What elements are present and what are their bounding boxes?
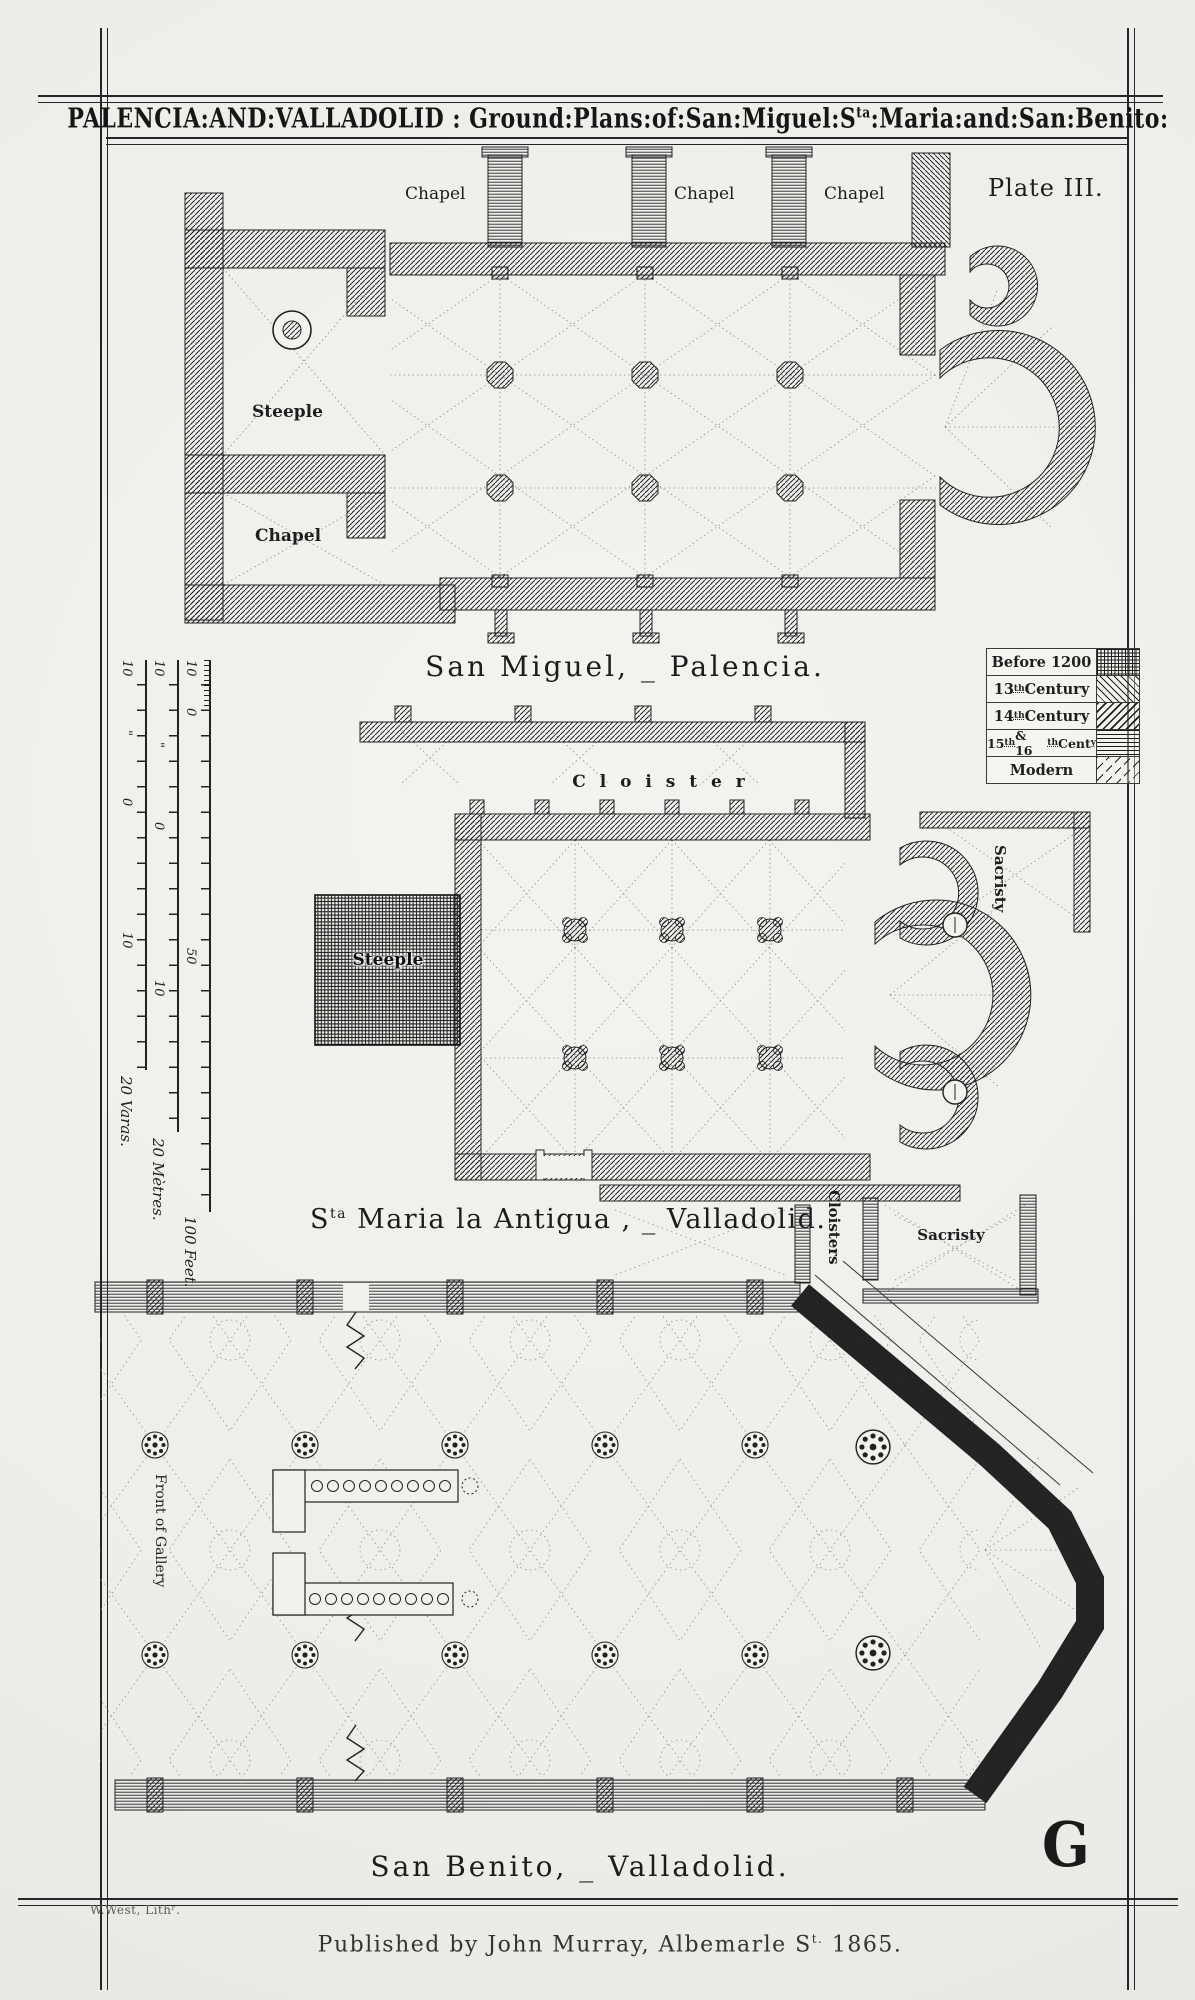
- scale-feet: 10 0 50 100 Feet.: [201, 660, 211, 1212]
- san-miguel-plan: [100, 145, 1110, 650]
- plate-title: PALENCIA:AND:VALLADOLID : Ground:Plans:o…: [108, 99, 1128, 139]
- scale-metres: 10 " 0 10 20 Mètres.: [169, 660, 179, 1132]
- front-of-gallery-label: Front of Gallery: [152, 1474, 168, 1587]
- publisher-imprint: Published by John Murray, Albemarle St. …: [290, 1932, 930, 1957]
- legend-row-13th: 13th Century: [987, 676, 1139, 703]
- title-part-b: Ground:Plans:of:San:Miguel:S: [469, 103, 856, 135]
- legend-swatch-before-1200: [1096, 649, 1139, 675]
- lithograph-plate-page: PALENCIA:AND:VALLADOLID : Ground:Plans:o…: [0, 0, 1195, 2000]
- south-buttresses: [488, 610, 804, 643]
- cloister-range: [360, 706, 865, 818]
- chapel-label-2: Chapel: [674, 184, 734, 204]
- cloisters-label: Cloisters: [825, 1190, 843, 1265]
- legend-swatch-13th: [1096, 676, 1139, 702]
- legend-row-before-1200: Before 1200: [987, 649, 1139, 676]
- chapel-label-west: Chapel: [255, 526, 321, 546]
- legend-label-before-1200: Before 1200: [992, 654, 1092, 671]
- steeple-label-sta-maria: Steeple: [338, 950, 438, 970]
- lithographer-credit: W.West, Lithʳ.: [90, 1903, 180, 1917]
- steeple-block: [315, 895, 460, 1045]
- vault-grid: [481, 840, 845, 1154]
- san-benito-plan: [95, 1185, 1110, 1865]
- caption-san-benito: San Benito, _ Valladolid.: [320, 1850, 840, 1883]
- north-wall: [390, 243, 945, 275]
- sacristy-label-sta-maria: Sacristy: [991, 845, 1009, 912]
- chapel-label-3: Chapel: [824, 184, 884, 204]
- star-vault-field: [100, 1315, 980, 1777]
- artist-monogram: G: [1042, 1809, 1090, 1882]
- steeple-label-san-miguel: Steeple: [252, 402, 323, 422]
- scale-feet-subdivisions: [204, 660, 209, 708]
- title-superscript: ta: [856, 104, 870, 121]
- stair-turret: [273, 311, 311, 349]
- sacristy-label-san-benito: Sacristy: [906, 1226, 996, 1244]
- frame-rule-right: [1127, 28, 1135, 1990]
- chapel-label-1: Chapel: [405, 184, 465, 204]
- cloister-label: C l o i s t e r: [518, 772, 803, 792]
- south-wall: [115, 1778, 985, 1812]
- caption-san-miguel: San Miguel, _ Palencia.: [350, 650, 900, 683]
- frame-rule-bottom: [18, 1898, 1178, 1906]
- south-wall: [440, 578, 935, 610]
- title-separator: :: [444, 103, 469, 135]
- scale-varas-label: 20 Varas.: [117, 1076, 135, 1147]
- title-part-a: PALENCIA:AND:VALLADOLID: [67, 103, 444, 135]
- vault-grid: [390, 275, 935, 578]
- scale-varas: 10 " 0 10 20 Varas.: [137, 660, 147, 1070]
- title-part-c: :Maria:and:San:Benito:: [871, 103, 1169, 135]
